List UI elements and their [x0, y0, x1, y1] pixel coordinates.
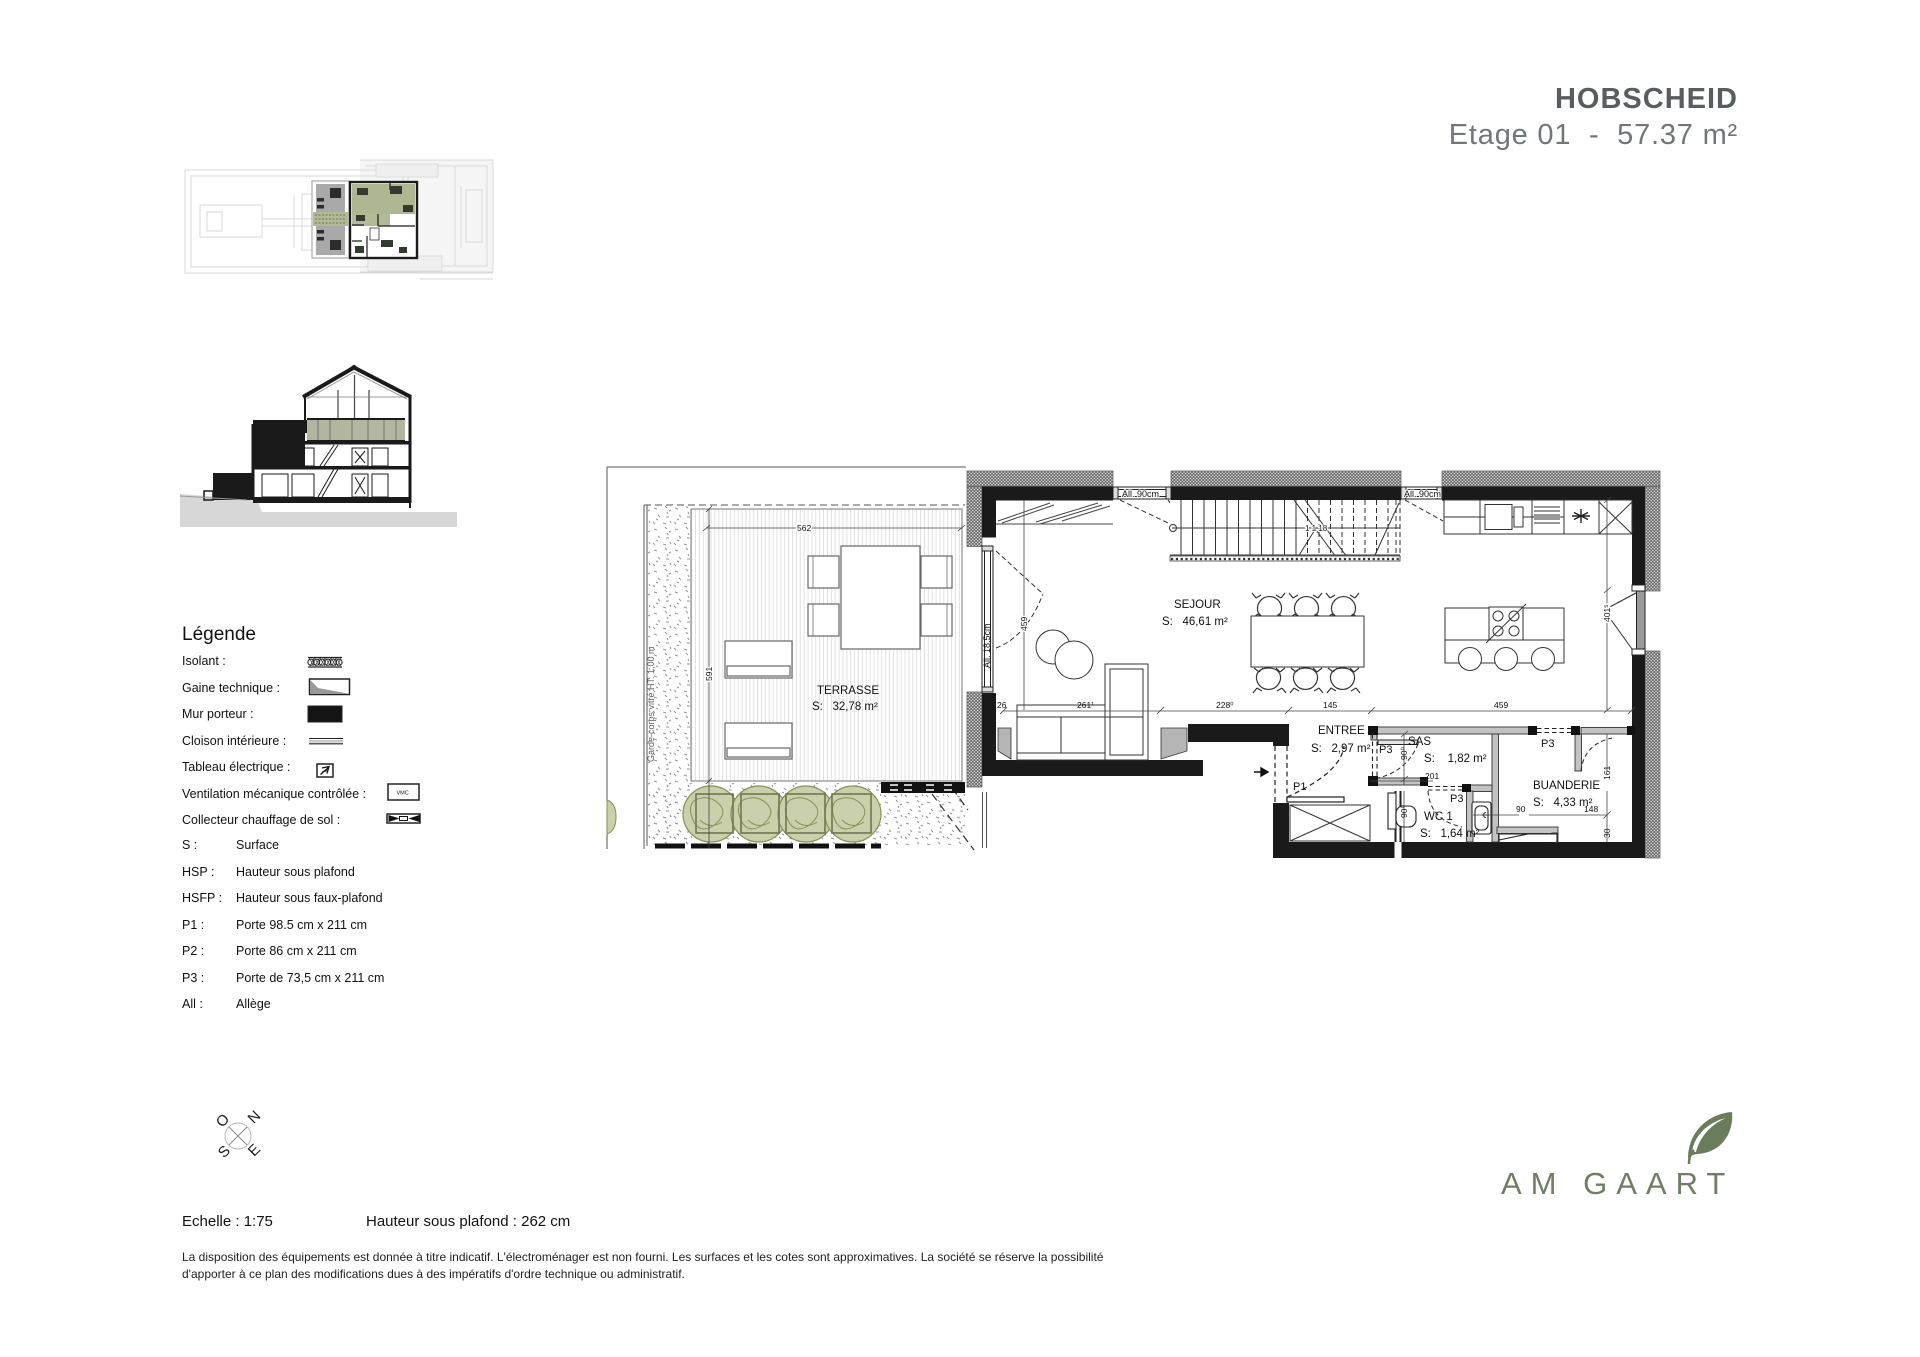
svg-text:90⁰: 90⁰	[1399, 747, 1409, 760]
svg-text:P3: P3	[1450, 793, 1463, 805]
svg-text:401⁵: 401⁵	[1602, 604, 1612, 622]
svg-text:145: 145	[1323, 700, 1337, 710]
svg-text:All. 90cm: All. 90cm	[1404, 489, 1441, 499]
svg-text:All. 90cm: All. 90cm	[1122, 489, 1159, 499]
svg-text:S: S	[215, 1142, 234, 1161]
svg-text:S: 1,82 m²: S: 1,82 m²	[1424, 753, 1487, 765]
svg-text:SEJOUR: SEJOUR	[1174, 599, 1221, 611]
svg-text:1 1 18: 1 1 18	[1305, 524, 1328, 533]
svg-text:P3: P3	[1541, 738, 1554, 750]
svg-text:All. 18,5cm: All. 18,5cm	[982, 623, 992, 668]
svg-text:562: 562	[797, 523, 811, 533]
svg-text:Garde-corps vitré HT. 1,00 m: Garde-corps vitré HT. 1,00 m	[646, 646, 656, 762]
svg-text:S: 4,33 m²: S: 4,33 m²	[1533, 797, 1593, 809]
svg-text:S: 1,64 m²: S: 1,64 m²	[1420, 828, 1480, 840]
svg-text:WC 1: WC 1	[1424, 811, 1453, 823]
svg-text:VMC: VMC	[397, 791, 409, 797]
svg-text:E: E	[245, 1141, 264, 1160]
svg-text:90⁰: 90⁰	[1399, 805, 1409, 818]
svg-text:BUANDERIE: BUANDERIE	[1533, 780, 1600, 792]
svg-text:591: 591	[704, 667, 714, 681]
svg-text:30: 30	[1602, 828, 1612, 838]
svg-text:P1: P1	[1293, 781, 1306, 793]
svg-text:S: 46,61 m²: S: 46,61 m²	[1162, 616, 1228, 628]
svg-text:S: 2,97 m²: S: 2,97 m²	[1311, 743, 1371, 755]
svg-text:161: 161	[1602, 766, 1612, 780]
svg-text:SAS: SAS	[1408, 736, 1431, 748]
svg-text:228⁰: 228⁰	[1216, 700, 1234, 710]
svg-text:26: 26	[997, 700, 1007, 710]
svg-text:90: 90	[1516, 804, 1526, 814]
svg-text:P3: P3	[1379, 744, 1392, 756]
svg-text:261¹: 261¹	[1077, 700, 1094, 710]
svg-text:459: 459	[1019, 617, 1029, 631]
svg-text:ENTREE: ENTREE	[1318, 725, 1365, 737]
svg-text:459: 459	[1494, 700, 1508, 710]
svg-text:201: 201	[1425, 771, 1439, 781]
svg-text:TERRASSE: TERRASSE	[817, 685, 879, 697]
svg-text:N: N	[245, 1108, 265, 1128]
svg-text:S: 32,78 m²: S: 32,78 m²	[812, 701, 878, 713]
